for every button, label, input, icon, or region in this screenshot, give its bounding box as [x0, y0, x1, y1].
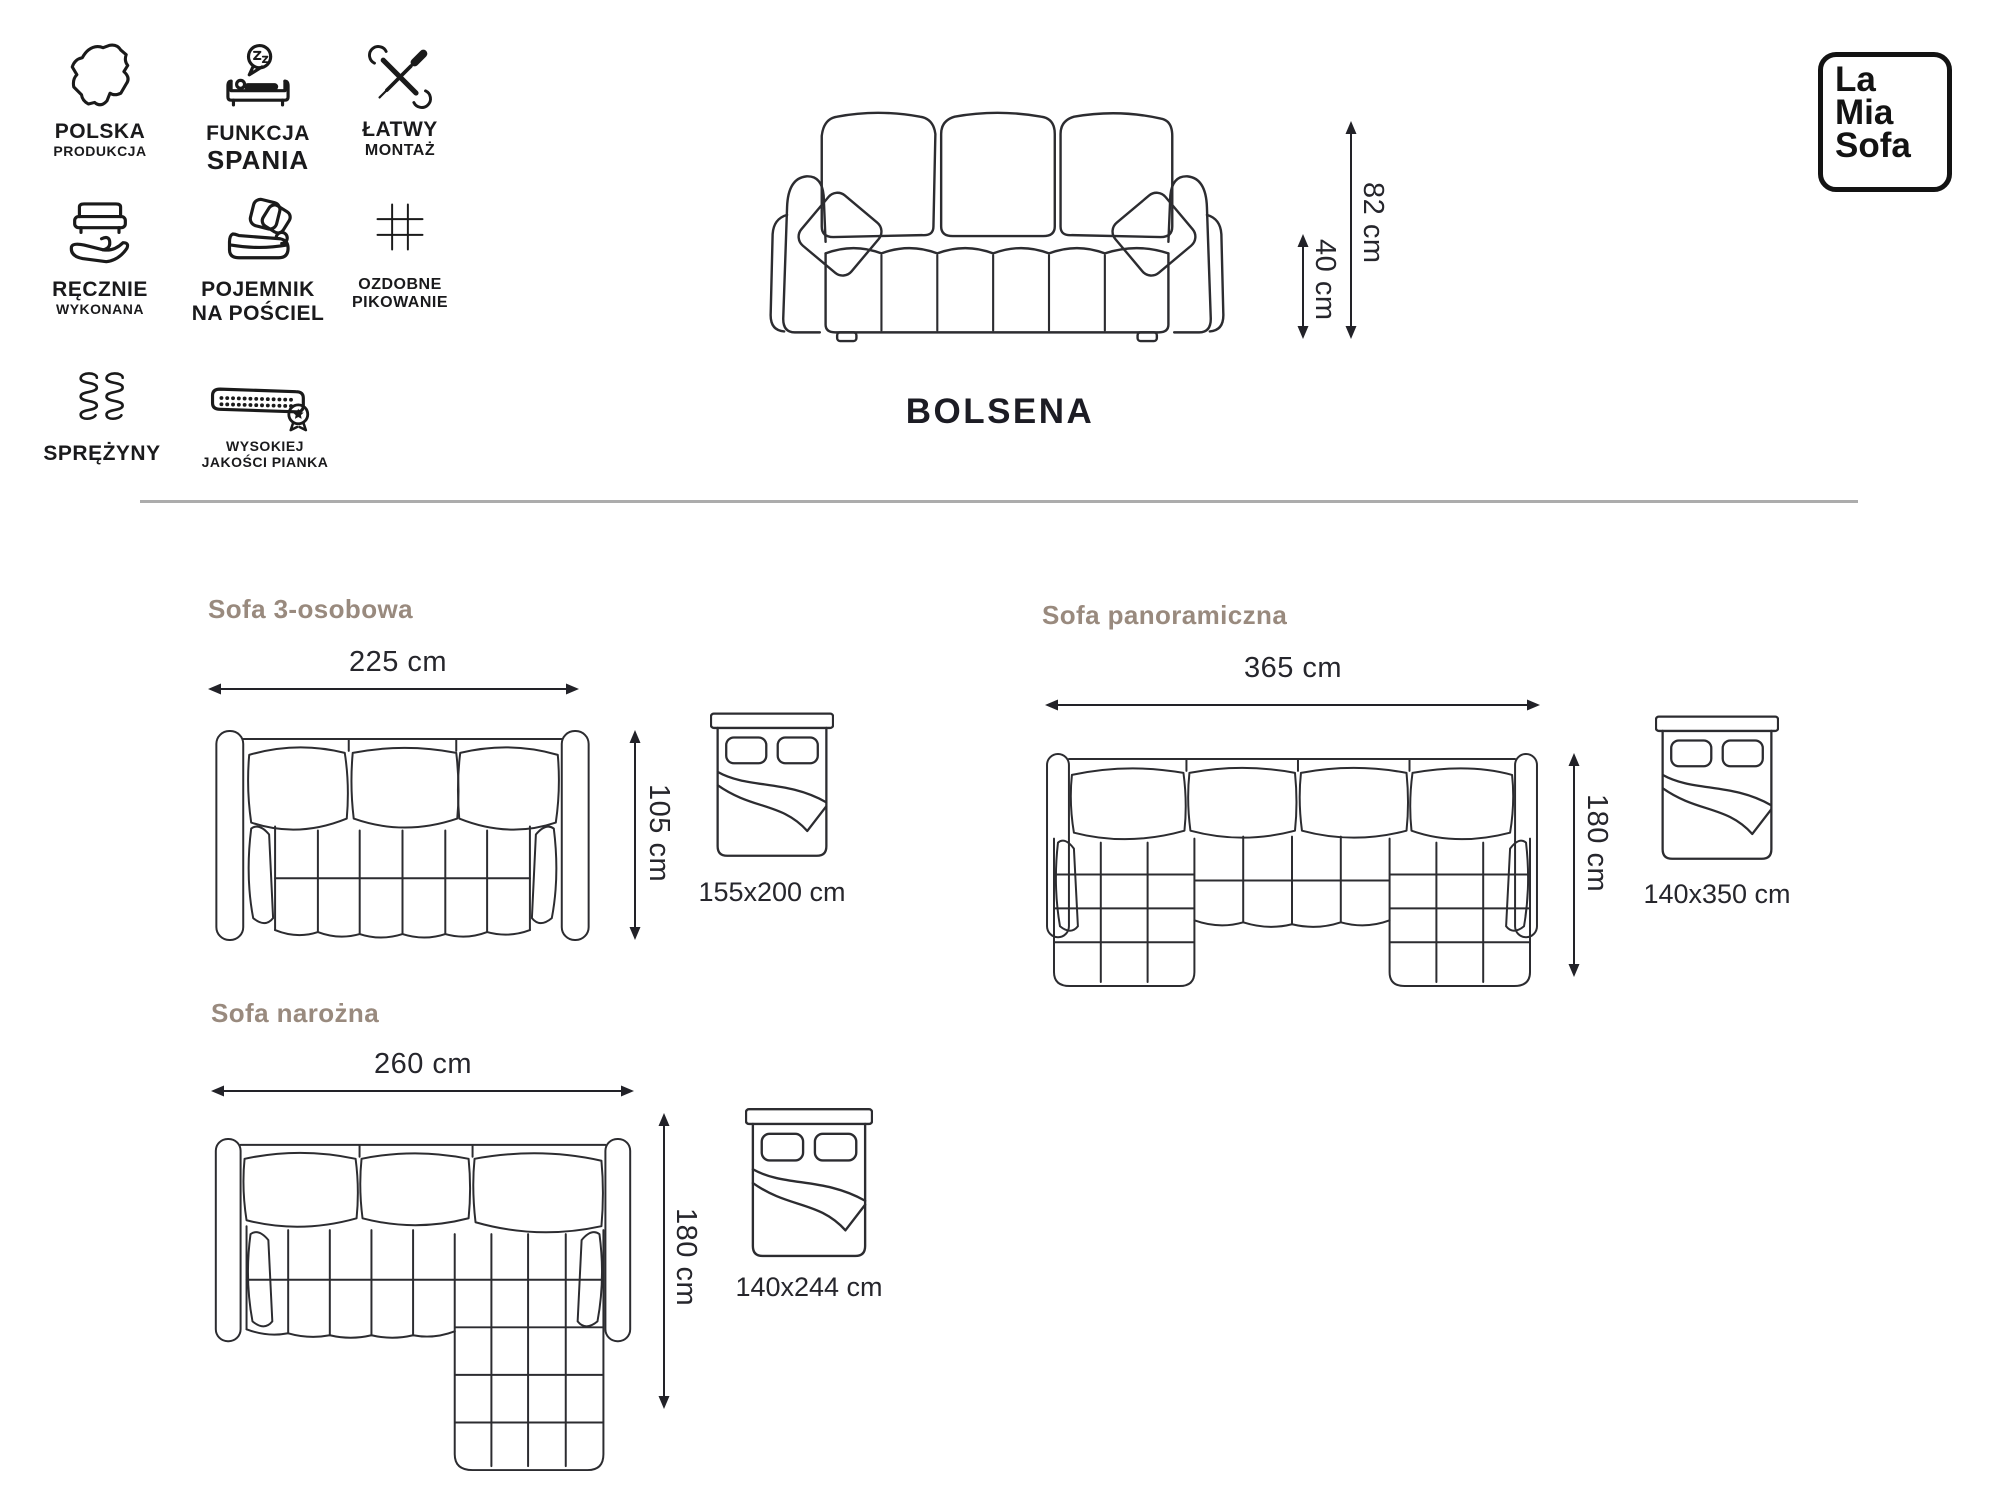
depth-dimension-label: 105 cm	[642, 784, 675, 882]
bed-size-icon	[1655, 714, 1779, 870]
width-dimension-label: 260 cm	[323, 1048, 523, 1081]
feature-label-secondary: MONTAŻ	[365, 142, 435, 160]
sofa-front-view-drawing	[737, 80, 1257, 344]
poland-map-icon	[60, 40, 140, 114]
springs-icon	[70, 370, 134, 432]
feature-funkcja-spania: FUNKCJA SPANIA	[190, 40, 326, 175]
feature-wysokiej-jakosci-pianka: WYSOKIEJ JAKOŚCI PIANKA	[186, 374, 344, 470]
sofa-3-top-view-drawing	[210, 727, 595, 944]
feature-label-primary: SPRĘŻYNY	[43, 442, 160, 466]
feature-label-secondary: WYKONANA	[56, 302, 144, 318]
width-dimension-arrow	[1044, 697, 1541, 713]
feature-label-primary: RĘCZNIE	[52, 278, 148, 302]
feature-label-secondary: NA POŚCIEL	[192, 302, 325, 326]
bed-size-icon	[745, 1108, 873, 1266]
easy-assembly-icon	[364, 42, 436, 112]
width-dimension-label: 365 cm	[1193, 652, 1393, 685]
variant-title-sofa-narozna: Sofa narożna	[211, 998, 379, 1029]
depth-dimension-label: 180 cm	[669, 1208, 702, 1306]
width-dimension-arrow	[207, 681, 580, 697]
feature-pojemnik-na-posciel: POJEMNIK NA POŚCIEL	[190, 196, 326, 325]
section-divider	[140, 500, 1858, 503]
variant-title-sofa-3-osobowa: Sofa 3-osobowa	[208, 594, 413, 625]
brand-line-1: La	[1835, 64, 1947, 97]
brand-line-2: Mia	[1835, 97, 1947, 130]
bed-size-icon	[710, 711, 834, 867]
brand-logo: La Mia Sofa	[1818, 52, 1952, 192]
feature-sprezyny: SPRĘŻYNY	[32, 370, 172, 466]
feature-label-secondary: PIKOWANIE	[352, 294, 448, 312]
feature-recznie-wykonana: RĘCZNIE WYKONANA	[32, 196, 168, 317]
sleep-function-icon	[216, 40, 300, 116]
bedding-storage-icon	[218, 196, 298, 272]
spec-sheet: POLSKA PRODUKCJA FUNKCJA SPANIA ŁATWY MO…	[0, 0, 2000, 1500]
bed-size-label: 155x200 cm	[672, 877, 872, 908]
feature-label-primary: FUNKCJA	[206, 122, 310, 146]
foam-quality-icon	[202, 374, 329, 432]
depth-dimension-label: 180 cm	[1580, 794, 1613, 892]
depth-dimension-arrow	[627, 729, 643, 941]
feature-label-primary: POJEMNIK	[201, 278, 315, 302]
variant-title-sofa-panoramiczna: Sofa panoramiczna	[1042, 600, 1287, 631]
height-dimension-label: 82 cm	[1356, 182, 1389, 263]
feature-label-primary: OZDOBNE	[358, 276, 442, 294]
seat-height-dimension-label: 40 cm	[1308, 239, 1341, 320]
handmade-icon	[60, 196, 140, 272]
feature-polska-produkcja: POLSKA PRODUKCJA	[32, 40, 168, 159]
width-dimension-label: 225 cm	[298, 646, 498, 679]
feature-ozdobne-pikowanie: OZDOBNE PIKOWANIE	[332, 200, 468, 312]
feature-label-secondary: PRODUKCJA	[53, 144, 146, 160]
product-title: BOLSENA	[850, 392, 1150, 432]
bed-size-label: 140x244 cm	[709, 1272, 909, 1303]
feature-label-primary: POLSKA	[55, 120, 146, 144]
feature-label-primary: WYSOKIEJ	[226, 439, 304, 455]
sofa-panoramic-top-view-drawing	[1042, 751, 1542, 990]
bed-size-label: 140x350 cm	[1617, 879, 1817, 910]
width-dimension-arrow	[210, 1083, 635, 1099]
feature-label-secondary: JAKOŚCI PIANKA	[202, 455, 329, 471]
feature-label-primary: ŁATWY	[362, 118, 438, 142]
sofa-corner-top-view-drawing	[211, 1135, 635, 1478]
brand-line-3: Sofa	[1835, 130, 1947, 163]
quilting-grid-icon	[372, 200, 428, 254]
feature-label-secondary: SPANIA	[207, 146, 309, 175]
feature-latwy-montaz: ŁATWY MONTAŻ	[332, 42, 468, 159]
